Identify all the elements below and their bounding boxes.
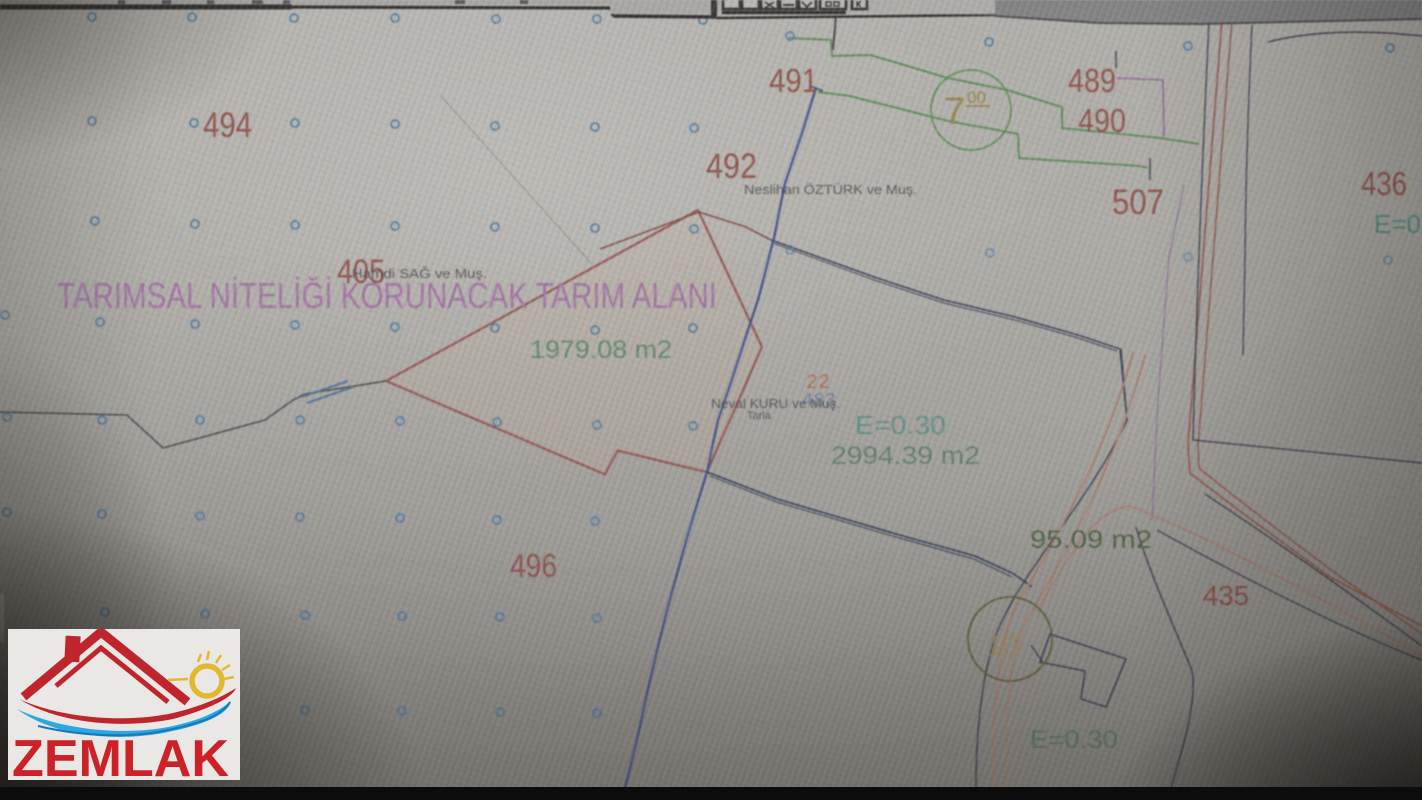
svg-text:ZEMLAK: ZEMLAK [12,730,229,780]
